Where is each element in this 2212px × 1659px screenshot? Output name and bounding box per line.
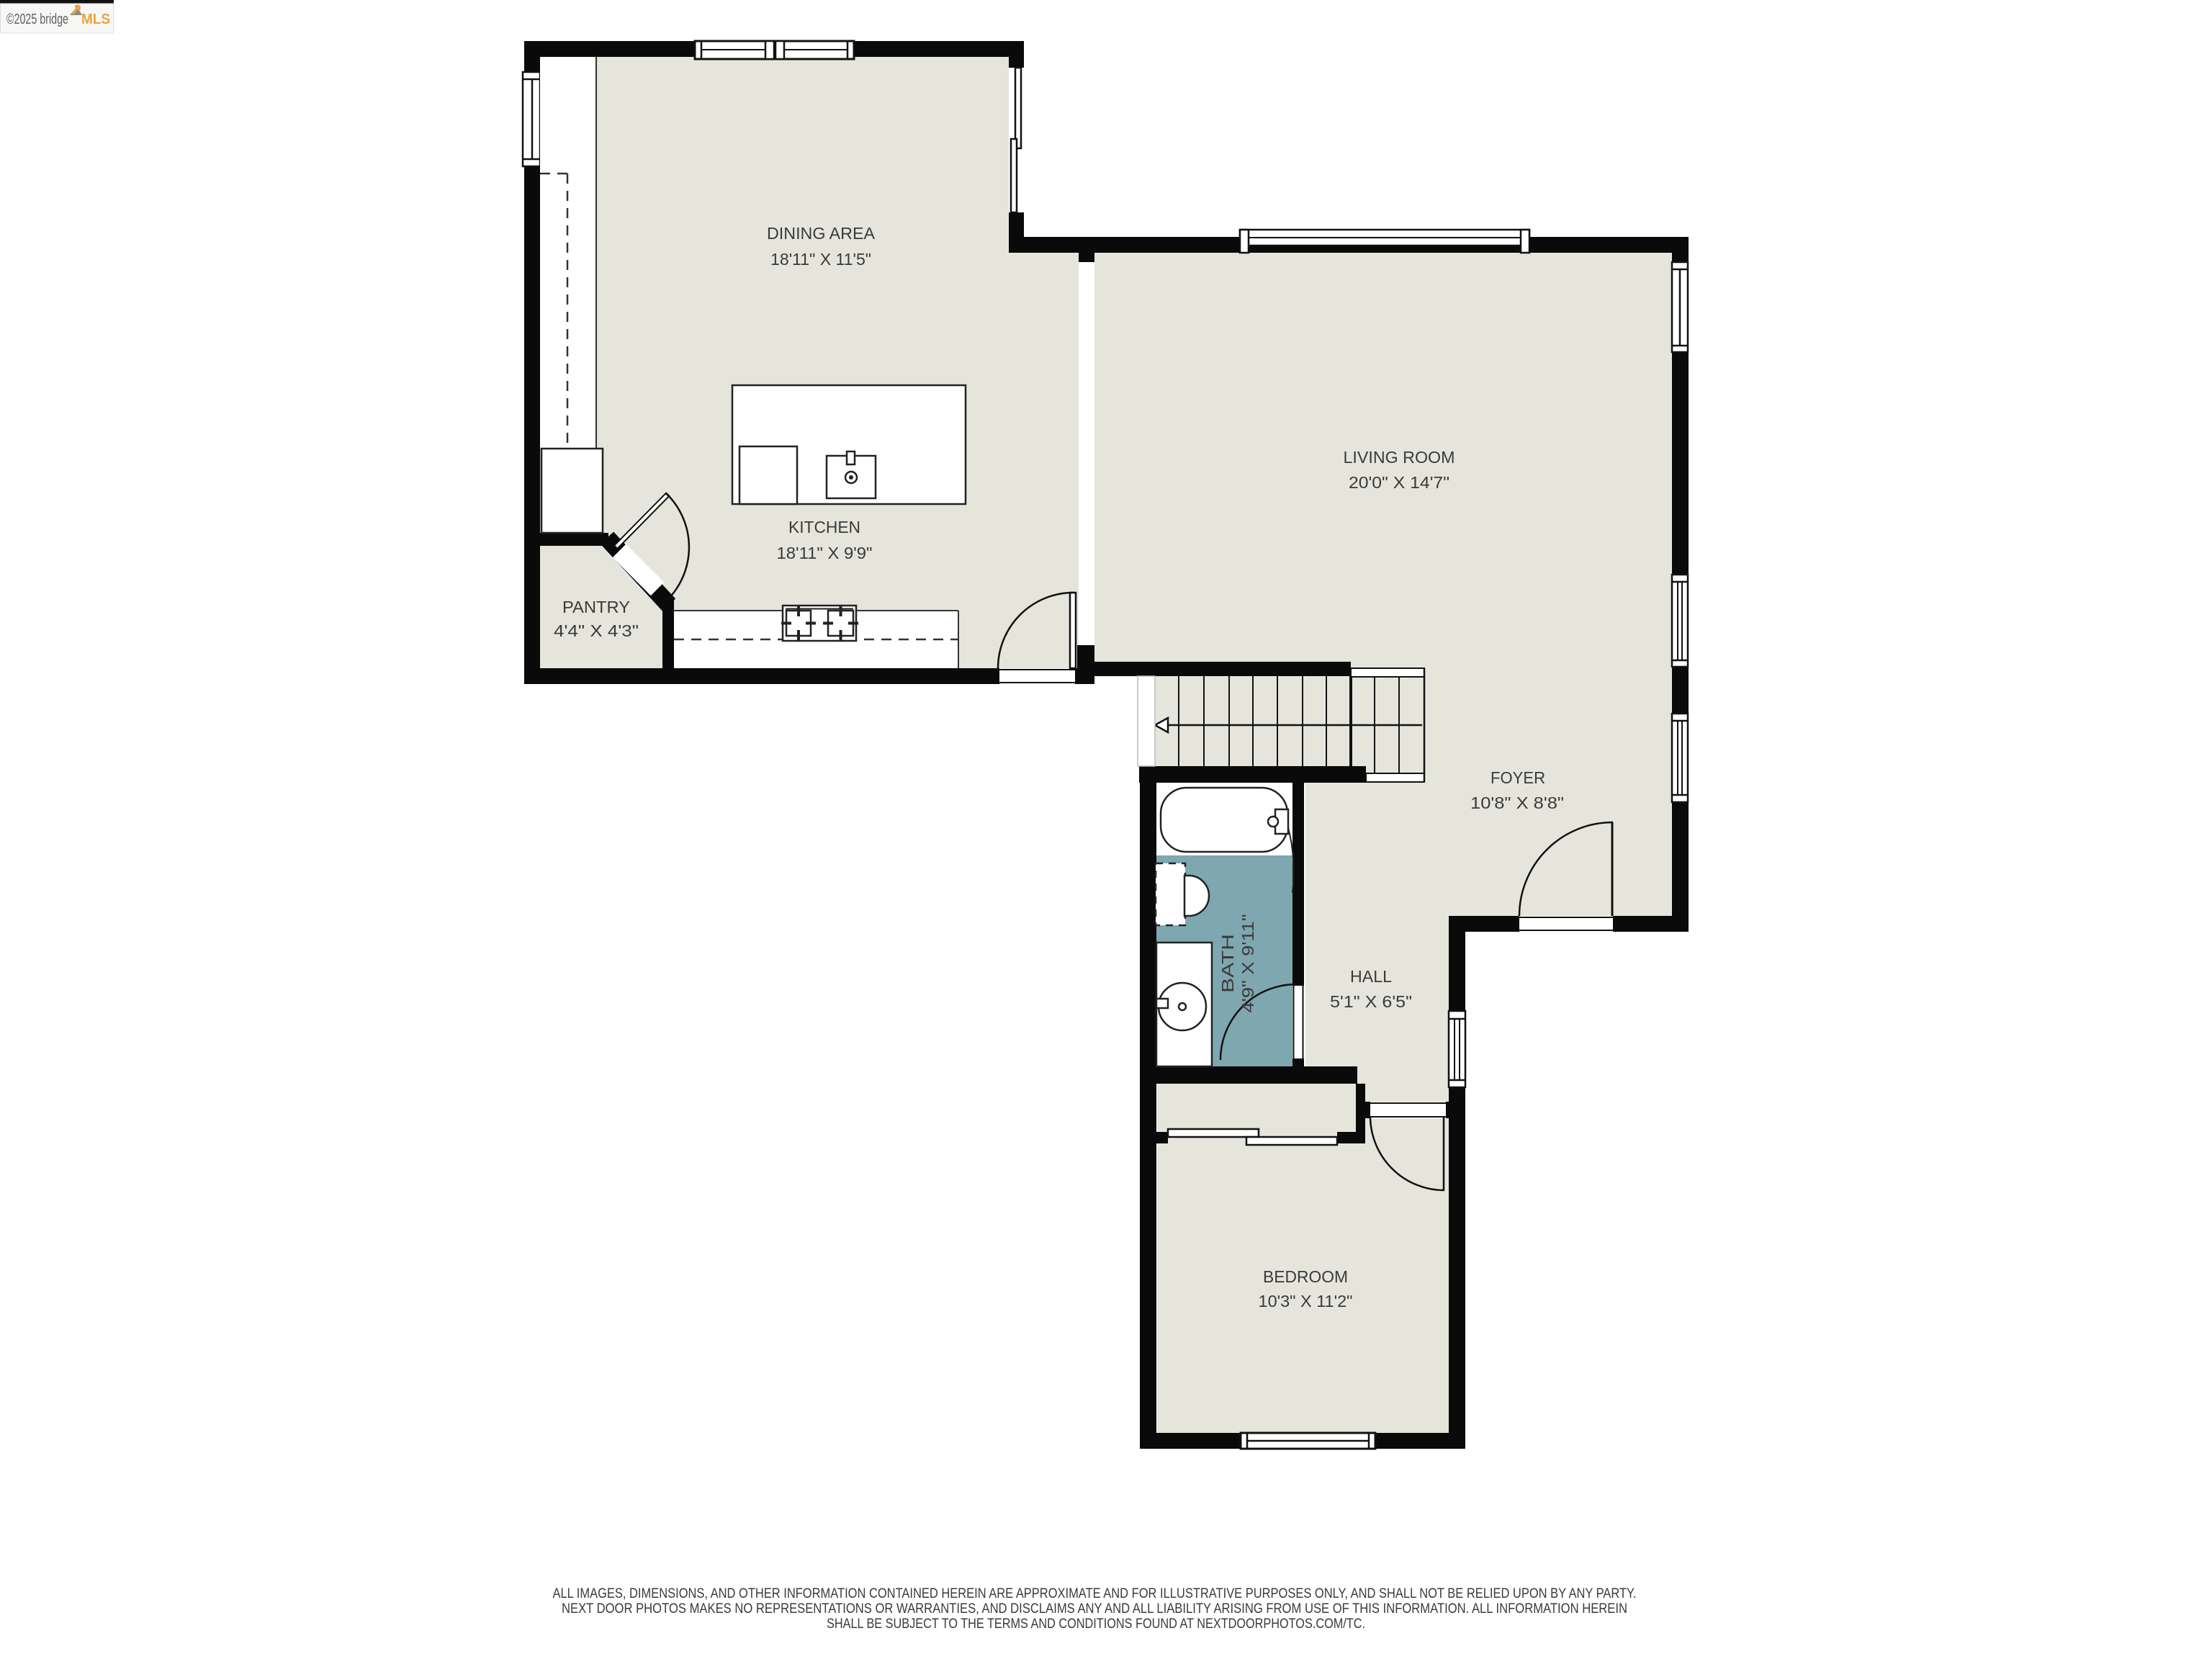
svg-text:10'8" X 8'8": 10'8" X 8'8" xyxy=(1470,793,1564,812)
svg-text:SHALL BE SUBJECT TO THE TERMS: SHALL BE SUBJECT TO THE TERMS AND CONDIT… xyxy=(827,1617,1365,1632)
svg-text:KITCHEN: KITCHEN xyxy=(788,518,860,536)
svg-text:18'11" X 9'9": 18'11" X 9'9" xyxy=(777,544,873,562)
svg-text:MLS: MLS xyxy=(81,12,110,27)
svg-text:PANTRY: PANTRY xyxy=(562,598,630,616)
svg-text:DINING AREA: DINING AREA xyxy=(767,224,876,243)
svg-text:10'3" X 11'2": 10'3" X 11'2" xyxy=(1259,1292,1353,1310)
svg-text:©2025 bridge: ©2025 bridge xyxy=(6,12,68,27)
svg-text:4'9" X 9'11": 4'9" X 9'11" xyxy=(1238,914,1257,1013)
svg-text:FOYER: FOYER xyxy=(1491,768,1545,787)
svg-text:BEDROOM: BEDROOM xyxy=(1263,1267,1348,1286)
svg-text:LIVING ROOM: LIVING ROOM xyxy=(1344,448,1455,467)
svg-text:ALL IMAGES, DIMENSIONS, AND OT: ALL IMAGES, DIMENSIONS, AND OTHER INFORM… xyxy=(553,1586,1637,1601)
svg-text:5'1" X 6'5": 5'1" X 6'5" xyxy=(1330,992,1412,1011)
svg-text:NEXT DOOR PHOTOS MAKES NO REPR: NEXT DOOR PHOTOS MAKES NO REPRESENTATION… xyxy=(562,1601,1627,1617)
svg-text:20'0" X 14'7": 20'0" X 14'7" xyxy=(1349,473,1449,492)
svg-text:18'11" X 11'5": 18'11" X 11'5" xyxy=(770,250,871,269)
svg-text:HALL: HALL xyxy=(1350,967,1392,986)
svg-text:4'4" X 4'3": 4'4" X 4'3" xyxy=(554,621,639,640)
svg-text:BATH: BATH xyxy=(1218,934,1237,993)
